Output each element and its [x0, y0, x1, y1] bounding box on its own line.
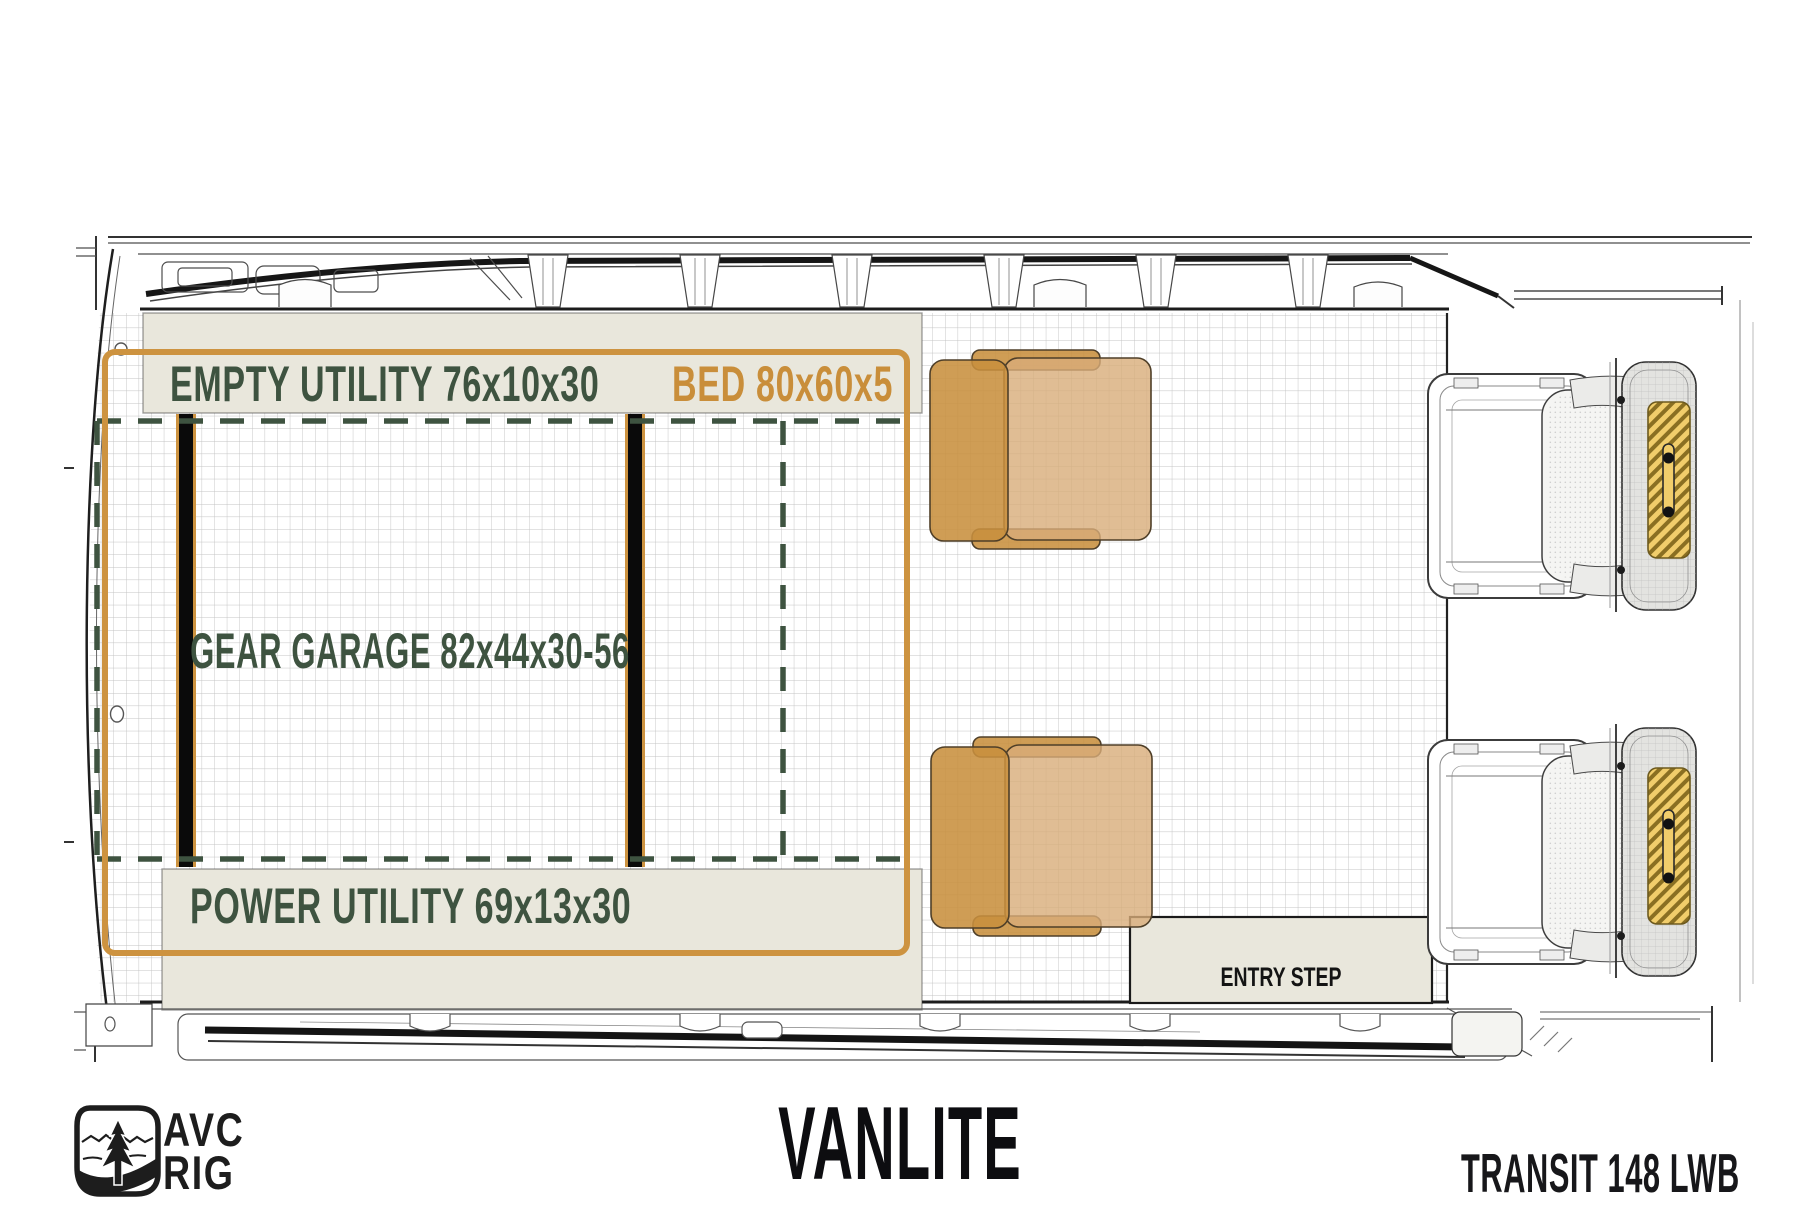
- brand-logo-icon: [72, 1103, 164, 1199]
- camp-chair-rear: [930, 350, 1151, 549]
- camp-chair-front: [931, 737, 1152, 936]
- brand-name-bottom: RIG: [163, 1149, 235, 1196]
- bed-label: BED 80x60x5: [672, 359, 893, 409]
- model-label: TRANSIT 148 LWB: [1461, 1146, 1740, 1201]
- power-utility-label: POWER UTILITY 69x13x30: [190, 881, 631, 931]
- vanlite-floorplan: EMPTY UTILITY 76x10x30 BED 80x60x5 GEAR …: [0, 0, 1801, 1221]
- driver-seat: [1428, 724, 1696, 978]
- page-title: VANLITE: [778, 1092, 1022, 1196]
- passenger-seat: [1428, 358, 1696, 612]
- van-top-view-drawing: [0, 0, 1801, 1221]
- empty-utility-label: EMPTY UTILITY 76x10x30: [170, 359, 599, 409]
- gear-garage-label: GEAR GARAGE 82x44x30-56: [190, 626, 630, 676]
- van-bottom-wall: [74, 1004, 1712, 1062]
- entry-step-label: ENTRY STEP: [1221, 964, 1342, 991]
